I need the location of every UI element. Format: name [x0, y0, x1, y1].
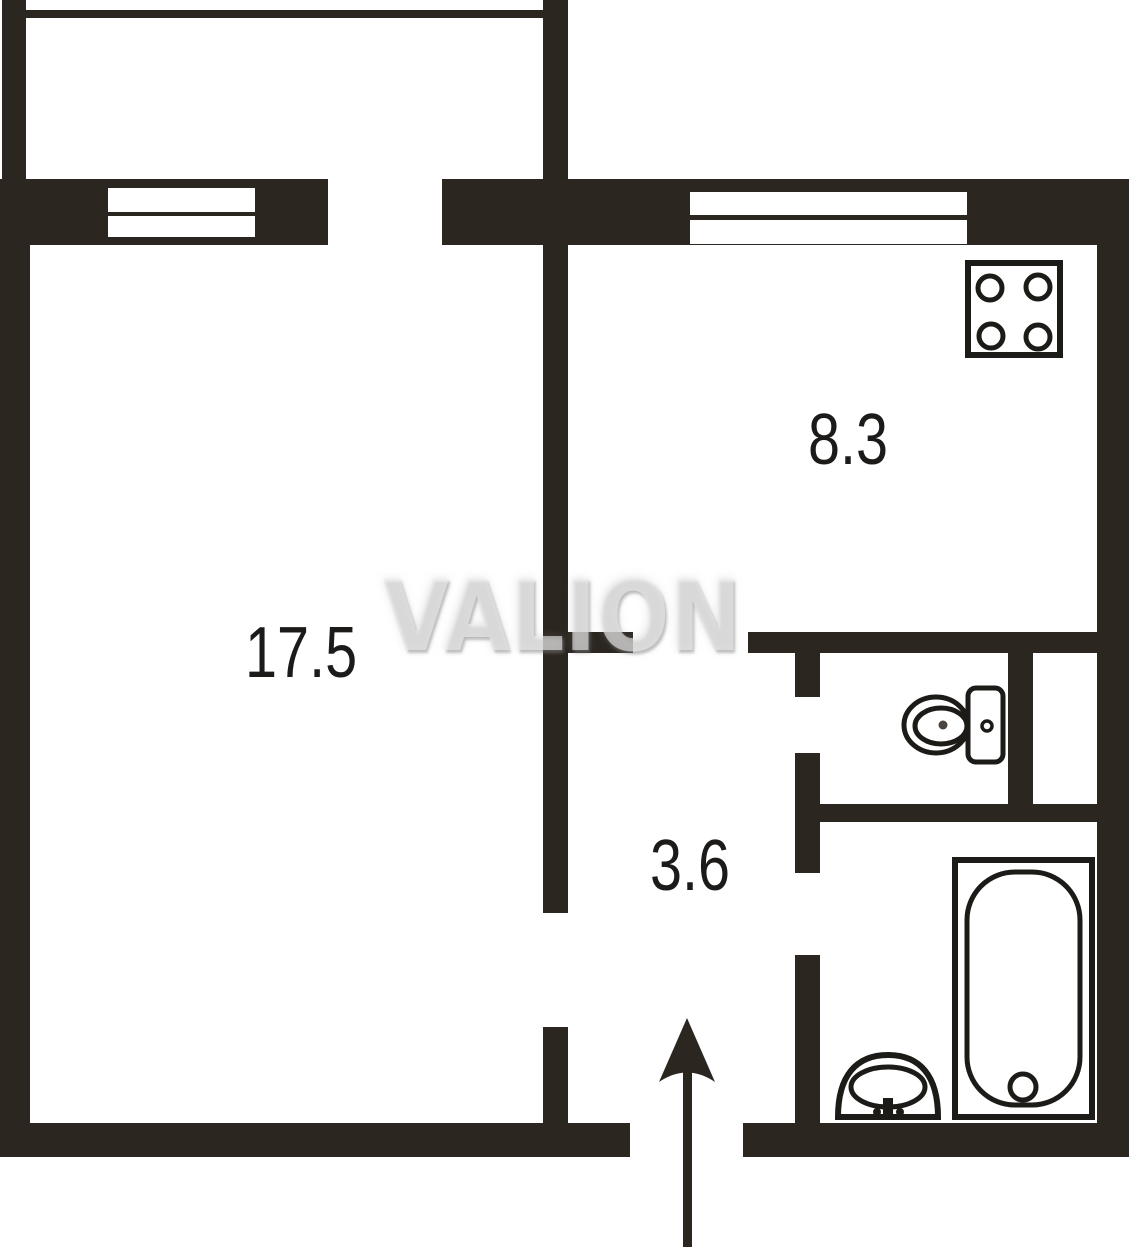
bath-hall-wall-upper	[795, 822, 820, 873]
bottom-wall-right	[743, 1123, 1129, 1157]
wc-bottom-wall	[795, 804, 1097, 822]
right-outer-wall	[1097, 179, 1129, 1157]
bathtub-icon	[950, 855, 1097, 1122]
window-sash-line	[690, 215, 967, 220]
entrance-arrow-icon	[648, 1008, 726, 1247]
sink-icon	[830, 1046, 947, 1123]
room-label-hallway: 3.6	[650, 830, 730, 902]
floor-plan: 17.5 8.3 3.6 VALION	[0, 0, 1129, 1247]
room-label-kitchen: 8.3	[808, 404, 888, 476]
left-outer-wall	[0, 179, 30, 1157]
center-wall-lower	[543, 1027, 568, 1130]
balcony-top-wall	[2, 10, 543, 18]
bath-hall-wall-lower	[795, 955, 820, 1130]
kitchen-bottom-wall-right	[748, 632, 1097, 653]
stove-icon	[960, 256, 1068, 362]
window-sash-line	[108, 212, 255, 216]
room-label-living-room: 17.5	[245, 617, 357, 689]
balcony-left-wall	[2, 0, 26, 182]
wc-hall-wall-upper	[795, 653, 820, 697]
window-kitchen	[690, 192, 967, 244]
toilet-icon	[898, 678, 1010, 772]
wc-shaft-wall	[1008, 653, 1033, 805]
center-wall-upper	[543, 245, 568, 913]
window-living-room	[108, 188, 255, 237]
kitchen-bottom-wall-left	[568, 632, 633, 653]
bottom-wall-left	[0, 1123, 630, 1157]
